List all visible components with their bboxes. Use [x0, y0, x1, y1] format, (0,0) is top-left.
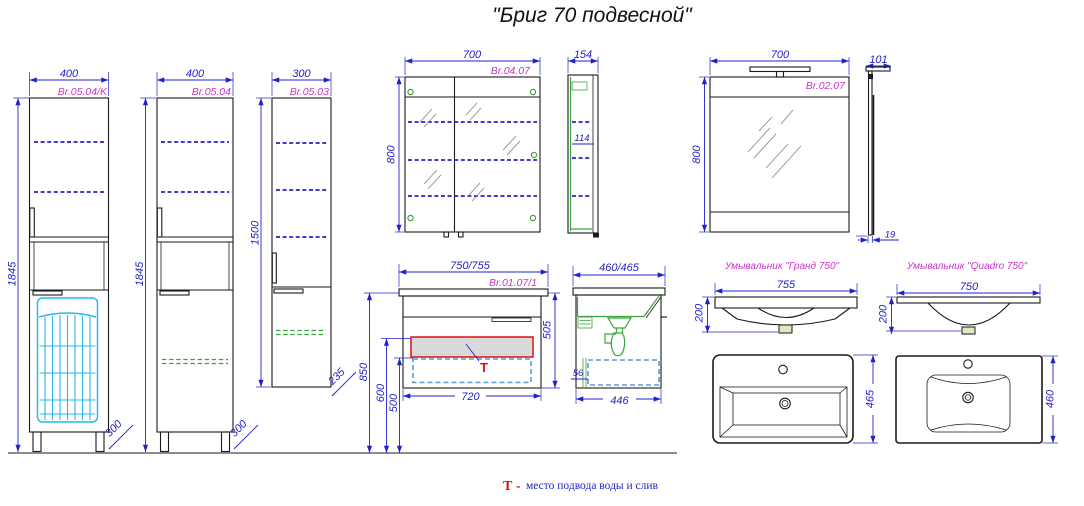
body-width-dim: 720 [461, 391, 480, 403]
countertop-side [573, 288, 665, 295]
height-dim: 1845 [7, 261, 19, 286]
product-code: Br.01.07/1 [489, 277, 537, 289]
mirror-shine-hatch [748, 110, 801, 178]
height-dim: 1500 [250, 220, 262, 245]
width-dim: 750 [960, 281, 979, 293]
door-handle [444, 232, 449, 237]
drain-stub [962, 327, 975, 334]
legend-text: место подвода воды и слив [526, 480, 659, 492]
foot [33, 432, 41, 452]
basin-slab-front [897, 297, 1040, 303]
foot [161, 432, 169, 452]
mirror-cabinet-br0407-front: 700 Br.04.07 800 [386, 49, 541, 237]
cabinet-br0504-drawing: 400 Br.05.04 1845 300 [134, 68, 258, 452]
drain-hole [780, 398, 791, 409]
width-dim: 755 [777, 279, 796, 291]
drawer-dashed-box-side [588, 360, 659, 385]
basin-grand-drawing: Умывальник "Гранд 750" 755 200 465 [694, 261, 879, 443]
width-dim: 700 [463, 49, 482, 61]
sheet-title: "Бриг 70 подвесной" [492, 4, 693, 27]
height-dim: 800 [386, 144, 398, 163]
width-dim: 700 [771, 49, 790, 61]
side-depth-dim: 101 [869, 54, 887, 66]
side-gap-dim: 56 [573, 368, 584, 379]
hamper-handle [33, 291, 62, 295]
body-height-dim: 505 [542, 320, 554, 339]
door-handle-lower [160, 291, 189, 295]
height-dim: 200 [878, 304, 890, 324]
foot [222, 432, 230, 452]
height-dim: 800 [691, 144, 703, 163]
vanity-br01071-side: 460/465 56 446 [571, 262, 667, 407]
wall-bracket [593, 233, 599, 238]
drawer-dashed-box [413, 359, 531, 383]
legend-marker: Т - [503, 479, 521, 494]
lamp-driver-box [572, 82, 587, 90]
product-code: Br.04.07 [491, 65, 531, 77]
height-dim: 200 [694, 303, 706, 323]
drain-hole [963, 392, 973, 402]
mirror-panel-profile [869, 71, 873, 235]
width-dim: 750/755 [450, 260, 491, 272]
supply-zone-box [411, 337, 533, 357]
door-handle [459, 232, 464, 237]
door-handle [272, 253, 276, 283]
width-dim: 300 [292, 68, 311, 80]
door-handle-lower [274, 289, 303, 293]
lamp-stem [777, 72, 784, 78]
floor-height-dim: 850 [358, 362, 370, 381]
basin-title: Умывальник "Гранд 750" [724, 261, 840, 272]
depth-dim: 235 [325, 366, 348, 389]
lamp [750, 67, 810, 72]
basin-title: Умывальник "Quadro 750" [906, 261, 1028, 272]
width-dim: 400 [186, 68, 205, 80]
laundry-basket [38, 298, 98, 422]
side-bottom-dim: 446 [610, 395, 629, 407]
mirror-br0207-side: 101 19 [856, 54, 899, 243]
cabinet-br0503-drawing: 300 Br.05.03 1500 235 [250, 68, 357, 396]
handle-groove [492, 318, 531, 322]
supply-marker: Т [480, 360, 488, 375]
cabinet-br0504k-drawing: 400 Br.05.04/K 1845 300 [7, 68, 134, 452]
product-code: Br.05.04 [192, 86, 231, 98]
panel-thickness-dim: 19 [885, 230, 896, 241]
foot [96, 432, 104, 452]
door-handle [30, 208, 35, 237]
width-dim: 400 [60, 68, 79, 80]
height-dim: 1845 [134, 261, 146, 286]
mirror-shine-hatch [420, 103, 520, 201]
basin-quadro-drawing: Умывальник "Quadro 750" 750 200 460 [878, 261, 1059, 443]
drain-height-dim: 500 [388, 393, 400, 412]
technical-drawing-sheet: "Бриг 70 подвесной" 400 Br.05.04/K 1845 [0, 0, 1084, 506]
drawing-canvas: "Бриг 70 подвесной" 400 Br.05.04/K 1845 [0, 0, 1084, 506]
water-connection-box [578, 317, 592, 328]
side-width-dim: 460/465 [599, 262, 640, 274]
door-handle [157, 208, 162, 237]
product-code: Br.02.07 [806, 80, 846, 92]
depth-dim: 460 [1045, 389, 1057, 408]
countertop [399, 289, 548, 296]
basin-rim-front [715, 297, 857, 308]
mirror-br0207-front: 700 Br.02.07 800 [691, 49, 849, 232]
mirror-cabinet-br0407-side: 154 114 [568, 49, 599, 238]
basin-top-view [896, 356, 1042, 443]
product-code: Br.05.04/K [58, 86, 108, 98]
side-depth-dim: 154 [574, 49, 592, 61]
legend: Т - место подвода воды и слив [503, 479, 659, 494]
inner-depth-dim: 114 [574, 133, 589, 144]
sink-profile [578, 296, 668, 318]
faucet-hole [779, 365, 788, 374]
product-code: Br.05.03 [290, 86, 329, 98]
faucet-hole [964, 360, 972, 368]
vanity-br01071-front: 750/755 Br.01.07/1 Т 850 600 500 505 720 [358, 260, 560, 453]
supply-height-dim: 600 [375, 383, 387, 402]
siphon-trap [605, 318, 631, 356]
lamp-profile [866, 67, 890, 71]
drain-stub [779, 325, 792, 333]
depth-dim: 465 [865, 389, 877, 408]
